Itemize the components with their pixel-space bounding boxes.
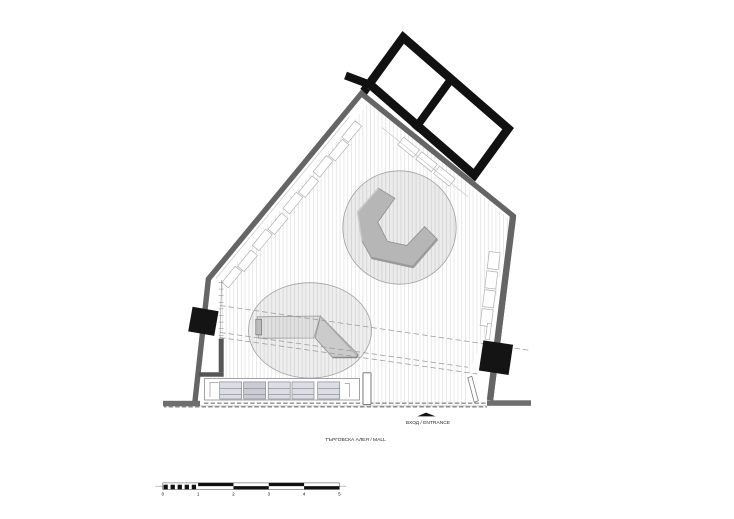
svg-text:ВХОД / ENTRANCE: ВХОД / ENTRANCE: [406, 420, 451, 426]
svg-text:ТЪРГОВСКА АЛЕЯ / MALL: ТЪРГОВСКА АЛЕЯ / MALL: [325, 437, 386, 443]
